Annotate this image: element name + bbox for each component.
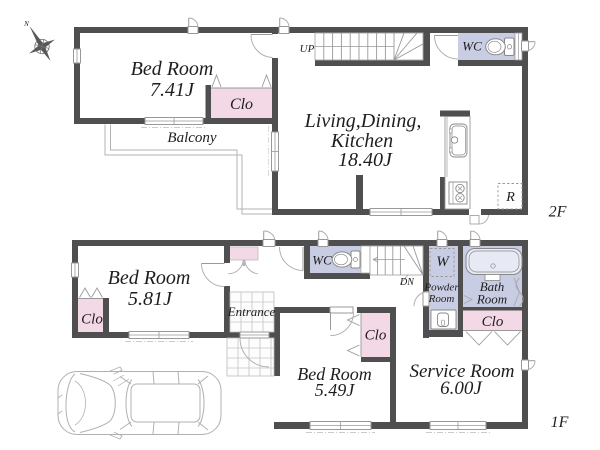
svg-text:18.40J: 18.40J (338, 149, 393, 171)
svg-text:WC: WC (462, 39, 482, 54)
svg-text:Powder: Powder (423, 282, 459, 294)
svg-text:WC: WC (312, 253, 332, 268)
svg-text:1F: 1F (551, 414, 569, 431)
svg-text:R: R (505, 190, 515, 205)
svg-text:Living,Dining,: Living,Dining, (304, 110, 422, 132)
svg-text:DN: DN (399, 277, 415, 288)
svg-text:Clo: Clo (482, 314, 504, 330)
svg-text:Bed Room: Bed Room (108, 267, 191, 289)
svg-text:5.81J: 5.81J (128, 288, 173, 310)
svg-text:Room: Room (476, 292, 507, 307)
svg-text:Bed Room: Bed Room (131, 58, 214, 80)
svg-text:UP: UP (300, 43, 315, 55)
svg-text:5.49J: 5.49J (315, 380, 356, 400)
svg-text:Clo: Clo (365, 328, 387, 344)
svg-text:2F: 2F (549, 204, 567, 221)
svg-text:Room: Room (428, 293, 455, 305)
svg-text:6.00J: 6.00J (440, 378, 483, 399)
svg-text:Entrance: Entrance (227, 304, 276, 319)
svg-text:W: W (436, 254, 450, 270)
svg-text:Clo: Clo (81, 312, 103, 328)
svg-text:7.41J: 7.41J (150, 79, 195, 101)
svg-text:Balcony: Balcony (167, 130, 216, 146)
svg-text:Clo: Clo (230, 96, 253, 113)
svg-text:N: N (23, 20, 29, 28)
